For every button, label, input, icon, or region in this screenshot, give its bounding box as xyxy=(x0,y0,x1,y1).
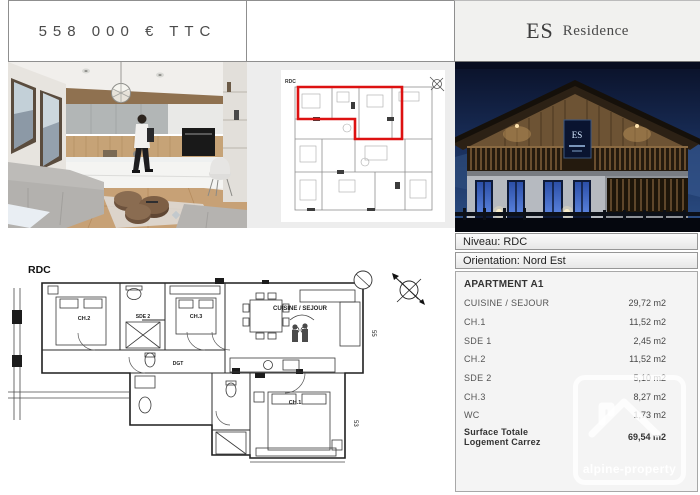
room-label-ch3: CH.3 xyxy=(190,314,203,320)
orientation-text: Orientation: Nord Est xyxy=(463,255,566,267)
room-label-sde2: SDE 2 xyxy=(136,314,151,320)
floorplan-art: RDC xyxy=(0,228,455,495)
table-row: CH.3 8,27 m2 xyxy=(456,387,697,406)
floorplan-level-label: RDC xyxy=(28,264,51,276)
building-plan-overview: RDC xyxy=(247,62,455,228)
brand-logo: ES Residence xyxy=(454,0,700,62)
niveau-row: Niveau: RDC xyxy=(455,233,698,250)
exterior-night-photo: ES xyxy=(455,62,700,232)
svg-text:ES: ES xyxy=(572,130,583,140)
watermark-text: alpine-property xyxy=(578,462,681,476)
surface-table: APARTMENT A1 CUISINE / SEJOUR 29,72 m2 C… xyxy=(455,271,698,492)
header-spacer xyxy=(246,0,455,62)
room-label-cuisine: CUISINE / SEJOUR xyxy=(273,306,328,312)
room-label-ch1: CH.1 xyxy=(289,400,302,406)
overview-corner-label: RDC xyxy=(285,79,296,85)
apartment-floorplan: RDC xyxy=(0,228,455,495)
table-row: CH.2 11,52 m2 xyxy=(456,350,697,369)
room-label-ch2: CH.2 xyxy=(78,316,91,322)
table-row-total: Surface Totale Logement Carrez 69,54 m2 xyxy=(456,428,697,447)
price-text: 558 000 € TTC xyxy=(39,23,217,40)
brand-secondary: Residence xyxy=(563,23,629,40)
interior-photo-art xyxy=(8,62,247,228)
property-sheet: 558 000 € TTC ES Residence xyxy=(0,0,700,495)
dimension-label-2: 53 xyxy=(352,420,358,427)
orientation-row: Orientation: Nord Est xyxy=(455,252,698,269)
table-row: CH.1 11,52 m2 xyxy=(456,313,697,332)
niveau-text: Niveau: RDC xyxy=(463,236,527,248)
table-row: WC 1,73 m2 xyxy=(456,406,697,425)
brand-primary: ES xyxy=(526,18,554,44)
overview-plan-art: RDC xyxy=(247,62,455,228)
table-row: SDE 2 5,10 m2 xyxy=(456,369,697,388)
table-row: CUISINE / SEJOUR 29,72 m2 xyxy=(456,294,697,313)
surface-rows: CUISINE / SEJOUR 29,72 m2 CH.1 11,52 m2 … xyxy=(456,294,697,447)
interior-photo xyxy=(8,62,247,228)
exterior-photo-art: ES xyxy=(455,62,700,232)
price-banner: 558 000 € TTC xyxy=(8,0,247,62)
dimension-label-1: 55 xyxy=(370,330,376,337)
table-row: SDE 1 2,45 m2 xyxy=(456,331,697,350)
room-label-dgt: DGT xyxy=(173,361,184,367)
apartment-title: APARTMENT A1 xyxy=(464,279,544,290)
